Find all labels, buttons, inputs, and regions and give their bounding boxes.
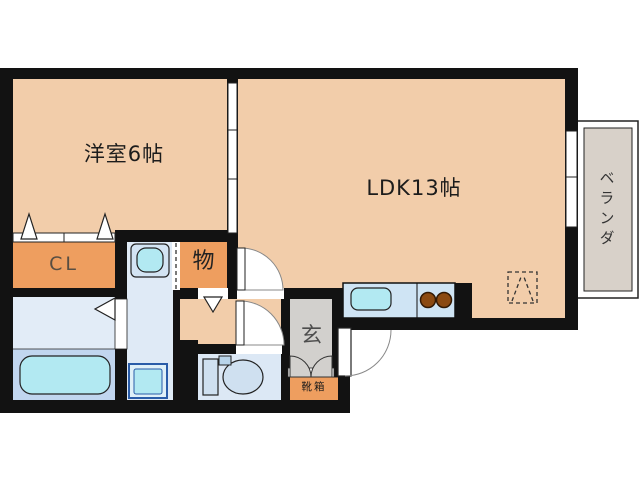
wall-toilet-top bbox=[198, 344, 236, 354]
stove-burner-icon bbox=[437, 293, 452, 308]
washing-machine-icon bbox=[134, 369, 162, 394]
wall-left bbox=[0, 68, 13, 413]
floorplan-drawing bbox=[0, 0, 640, 480]
wall-under-front-door bbox=[338, 376, 350, 403]
wall-counter-stub bbox=[455, 283, 472, 318]
washbasin-bowl-icon bbox=[137, 248, 163, 272]
western-room-floor bbox=[13, 79, 227, 233]
kitchen-sink-icon bbox=[351, 288, 391, 310]
floorplan: 洋室6帖 LDK13帖 ベランダ CL 物 玄 靴箱 bbox=[0, 0, 640, 480]
toilet-tank-icon bbox=[203, 359, 218, 395]
wall-bottom-left bbox=[0, 400, 350, 413]
front-door-leaf bbox=[338, 328, 351, 376]
bathroom-door-gap bbox=[115, 299, 127, 349]
balcony-window bbox=[566, 131, 577, 227]
bathtub-icon bbox=[20, 356, 110, 394]
ldk-door-leaf bbox=[237, 248, 245, 290]
storage-floor bbox=[180, 241, 227, 288]
bathroom-floor bbox=[13, 297, 115, 349]
balcony bbox=[577, 121, 638, 298]
toilet-flush-icon bbox=[219, 356, 231, 365]
closet-floor bbox=[13, 242, 115, 288]
wall-bottom-ldk bbox=[333, 318, 578, 330]
front-door-swing bbox=[345, 330, 391, 376]
wall-closet-bath bbox=[13, 288, 117, 297]
toilet-door-leaf bbox=[236, 301, 244, 345]
wall-toilet-left bbox=[180, 340, 198, 400]
shoe-box bbox=[289, 377, 339, 402]
sliding-door-western-ldk bbox=[228, 83, 237, 233]
ldk-floor bbox=[238, 79, 565, 318]
balcony-inner bbox=[584, 128, 632, 291]
wall-top bbox=[0, 68, 578, 79]
wall-hall-entrance bbox=[281, 299, 290, 400]
stove-burner-icon bbox=[421, 293, 436, 308]
